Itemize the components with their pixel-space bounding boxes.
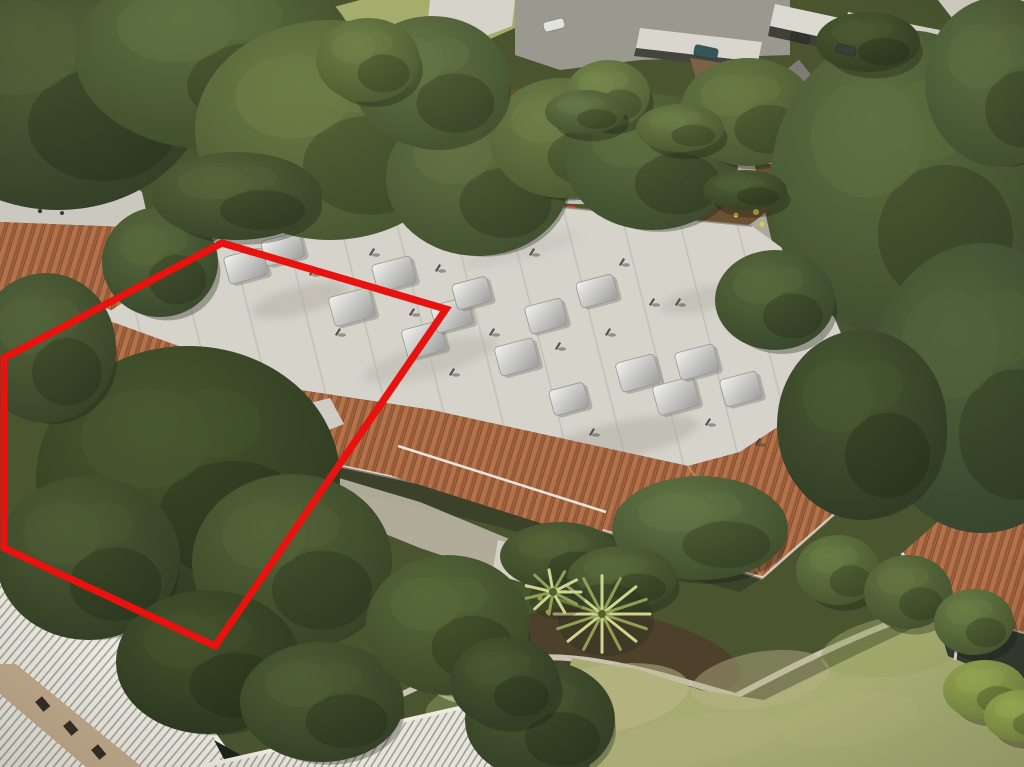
- aerial-photo-svg: [0, 0, 1024, 767]
- photo-vignette: [0, 0, 1024, 767]
- aerial-photo: [0, 0, 1024, 767]
